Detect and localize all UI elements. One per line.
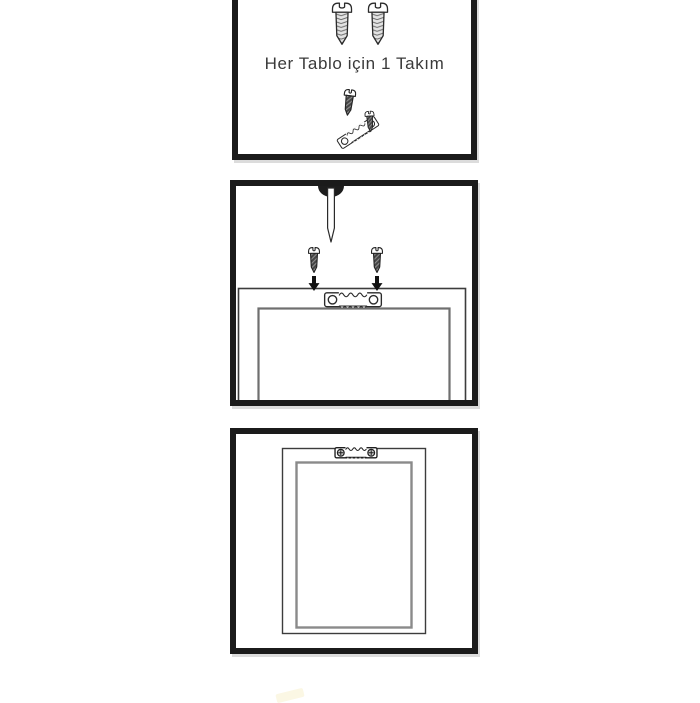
sawtooth-hanger-icon xyxy=(325,292,382,309)
frame-inner-outline xyxy=(259,309,450,401)
sawtooth-hanger-icon xyxy=(336,116,380,151)
cropped-object-artifact xyxy=(275,688,304,703)
screw-icon xyxy=(309,248,320,273)
nail-icon xyxy=(318,186,344,242)
panel-hardware-kit: Her Tablo için 1 Takım xyxy=(232,0,477,160)
panel-mounted-frame xyxy=(230,428,478,654)
screw-icon xyxy=(332,3,351,44)
screw-icon xyxy=(342,89,356,116)
sawtooth-hanger-installed-icon xyxy=(335,447,377,460)
hardware-kit-graphic xyxy=(238,0,471,156)
mounted-frame-graphic xyxy=(236,434,472,648)
screw-icon xyxy=(372,248,383,273)
frame-back-inner-outline xyxy=(297,463,412,628)
panel-installation-step xyxy=(230,180,478,406)
installation-graphic xyxy=(236,186,472,400)
kit-caption: Her Tablo için 1 Takım xyxy=(238,54,471,74)
screw-icon xyxy=(368,3,387,44)
frame-back-outline xyxy=(283,449,426,634)
